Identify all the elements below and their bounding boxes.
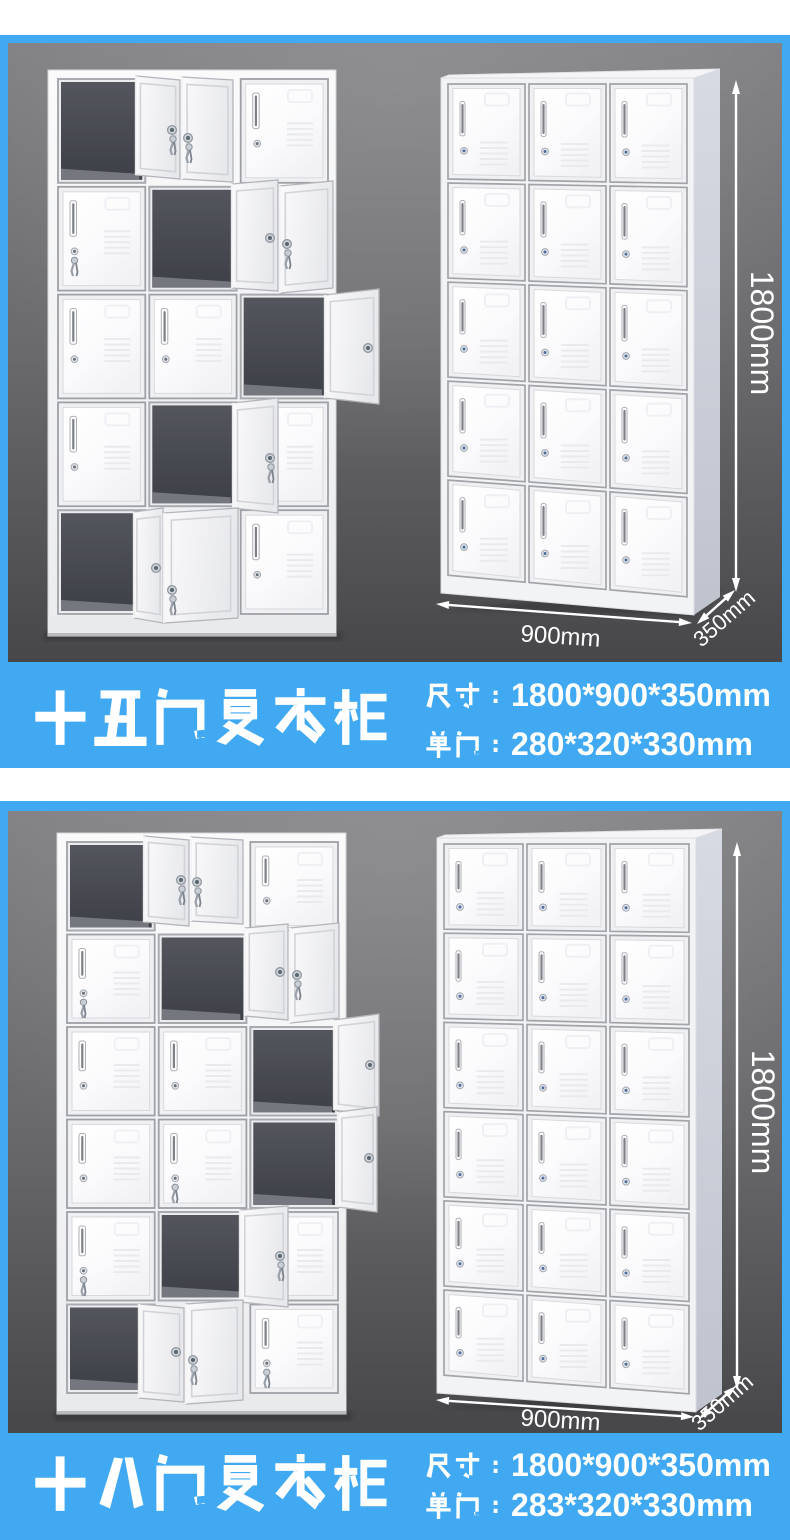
svg-text:900mm: 900mm	[520, 620, 602, 652]
svg-text:1800*900*350mm: 1800*900*350mm	[511, 677, 771, 713]
svg-text:280*320*330mm: 280*320*330mm	[511, 726, 753, 762]
svg-text:900mm: 900mm	[520, 1405, 602, 1437]
svg-text:283*320*330mm: 283*320*330mm	[511, 1487, 753, 1523]
svg-text:1800mm: 1800mm	[744, 271, 780, 396]
svg-text:1800mm: 1800mm	[745, 1050, 781, 1175]
svg-text:1800*900*350mm: 1800*900*350mm	[511, 1447, 771, 1483]
